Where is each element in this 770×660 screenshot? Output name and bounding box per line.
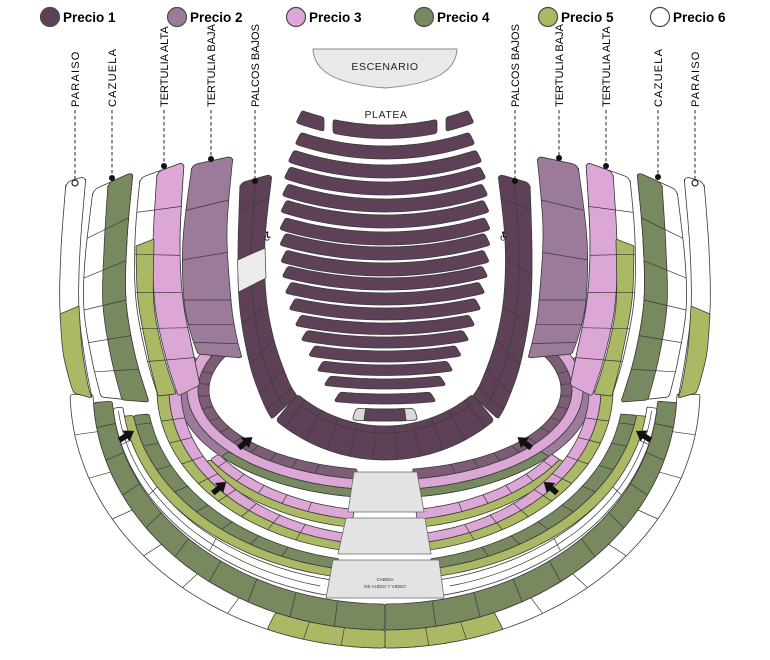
svg-text:PARAISO: PARAISO (70, 51, 82, 108)
svg-text:TERTULIA ALTA: TERTULIA ALTA (601, 26, 613, 107)
svg-text:Precio 4: Precio 4 (437, 10, 490, 25)
svg-text:CABINA: CABINA (376, 577, 394, 582)
svg-text:TERTULIA ALTA: TERTULIA ALTA (159, 26, 171, 107)
svg-text:TERTULIA BAJA: TERTULIA BAJA (206, 23, 218, 107)
svg-text:Precio 3: Precio 3 (309, 10, 362, 25)
svg-text:PARAISO: PARAISO (690, 51, 702, 108)
svg-text:Precio 5: Precio 5 (561, 10, 614, 25)
svg-text:TERTULIA BAJA: TERTULIA BAJA (554, 23, 566, 107)
svg-text:ESCENARIO: ESCENARIO (351, 61, 418, 73)
svg-text:CAZUELA: CAZUELA (107, 48, 119, 107)
svg-text:PALCOS BAJOS: PALCOS BAJOS (510, 24, 522, 107)
svg-text:PLATEA: PLATEA (364, 109, 407, 121)
svg-text:DE AUDIO Y VIDEO: DE AUDIO Y VIDEO (364, 584, 406, 589)
svg-text:CAZUELA: CAZUELA (653, 48, 665, 107)
svg-text:Precio 6: Precio 6 (673, 10, 726, 25)
svg-text:PALCOS BAJOS: PALCOS BAJOS (250, 24, 262, 107)
svg-text:Precio 1: Precio 1 (63, 10, 116, 25)
svg-text:Precio 2: Precio 2 (190, 10, 243, 25)
